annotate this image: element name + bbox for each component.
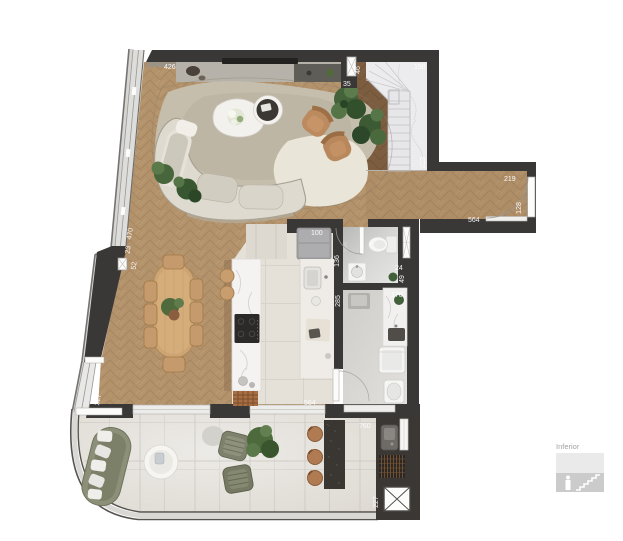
svg-text:Inferior: Inferior (556, 442, 580, 451)
svg-text:426: 426 (164, 64, 176, 71)
svg-text:24: 24 (395, 265, 403, 272)
svg-text:49: 49 (399, 275, 406, 283)
svg-text:227: 227 (373, 496, 380, 508)
svg-text:136: 136 (334, 255, 341, 267)
svg-text:564: 564 (304, 400, 316, 407)
svg-text:219: 219 (504, 176, 516, 183)
svg-text:52: 52 (131, 261, 139, 270)
svg-text:100: 100 (311, 230, 323, 237)
svg-text:23: 23 (125, 245, 133, 254)
svg-text:259: 259 (420, 157, 427, 169)
svg-text:285: 285 (335, 295, 342, 307)
svg-text:170: 170 (391, 292, 403, 299)
svg-text:128: 128 (516, 202, 523, 214)
svg-text:760: 760 (359, 423, 371, 430)
svg-text:46: 46 (355, 66, 362, 74)
svg-text:564: 564 (468, 217, 480, 224)
svg-text:35: 35 (343, 81, 351, 88)
svg-text:190: 190 (414, 64, 426, 71)
